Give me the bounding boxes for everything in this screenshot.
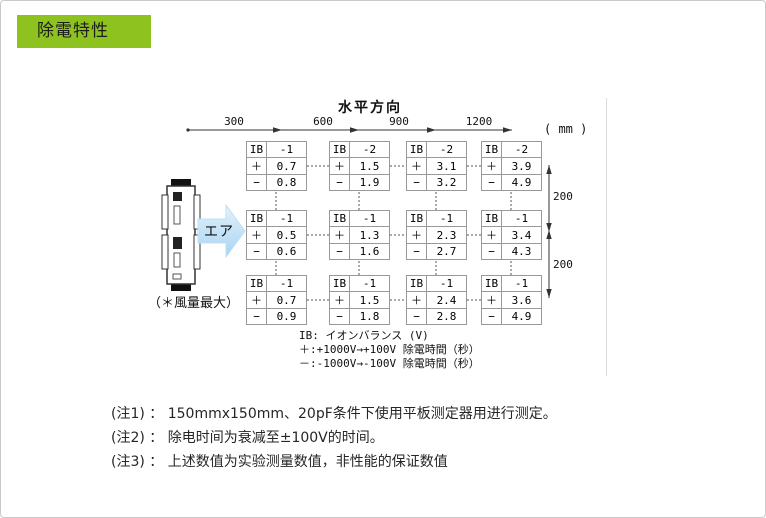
- measurement-table-r2c3: IB-1 ＋2.3 −2.7: [406, 210, 467, 260]
- measurement-table-r3c1: IB-1 ＋0.7 −0.9: [246, 275, 307, 325]
- footnote-2: (注2) ： 除电时间为衰减至±100V的时间。: [111, 426, 557, 450]
- measurement-table-r1c3: IB-2 ＋3.1 −3.2: [406, 141, 467, 191]
- footnote-3: (注3) ： 上述数值为实验测量数值，非性能的保证数值: [111, 450, 557, 474]
- arrowhead-300: [273, 127, 282, 132]
- measurement-table-r2c1: IB-1 ＋0.5 −0.6: [246, 210, 307, 260]
- max-airflow-note: （＊風量最大）: [148, 292, 239, 311]
- footnotes: (注1) ： 150mmx150mm、20pF条件下使用平板测定器用进行测定。 …: [111, 402, 557, 474]
- measurement-table-r3c4: IB-1 ＋3.6 −4.9: [481, 275, 542, 325]
- measurement-table-r2c4: IB-1 ＋3.4 −4.3: [481, 210, 542, 260]
- measurement-table-r1c4: IB-2 ＋3.9 −4.9: [481, 141, 542, 191]
- measurement-table-r1c2: IB-2 ＋1.5 −1.9: [329, 141, 390, 191]
- arrowhead-1200: [503, 127, 512, 132]
- section-title: 除電特性: [17, 15, 151, 48]
- dotted-grid-connectors: [276, 166, 511, 300]
- horizontal-dimension-line: [186, 127, 512, 132]
- legend-line-plus: ＋:+1000V→+100V 除電時間（秒）: [299, 343, 480, 357]
- measurement-table-r3c2: IB-1 ＋1.5 −1.8: [329, 275, 390, 325]
- diagram-legend: IB: イオンバランス (V) ＋:+1000V→+100V 除電時間（秒） －…: [299, 329, 480, 371]
- legend-line-minus: －:-1000V→-100V 除電時間（秒）: [299, 357, 480, 371]
- measurement-table-r2c2: IB-1 ＋1.3 −1.6: [329, 210, 390, 260]
- arrowhead-600: [350, 127, 359, 132]
- arrowhead-mid-up: [546, 230, 551, 239]
- footnote-1: (注1) ： 150mmx150mm、20pF条件下使用平板测定器用进行测定。: [111, 402, 557, 426]
- arrowhead-down: [546, 289, 551, 298]
- air-label: エア: [204, 221, 234, 241]
- measurement-table-r1c1: IB-1 ＋0.7 −0.8: [246, 141, 307, 191]
- measurement-table-r3c3: IB-1 ＋2.4 −2.8: [406, 275, 467, 325]
- datasheet-page: 除電特性 水平方向 300 600 900 1200 ( mm ) 200 20…: [0, 0, 766, 518]
- legend-line-ib: IB: イオンバランス (V): [299, 329, 480, 343]
- arrowhead-up: [546, 165, 551, 174]
- arrowhead-900: [427, 127, 436, 132]
- ionizer-bar-illustration: [162, 179, 200, 291]
- diagram-right-divider: [606, 98, 607, 376]
- vertical-dimension-line: [546, 165, 551, 298]
